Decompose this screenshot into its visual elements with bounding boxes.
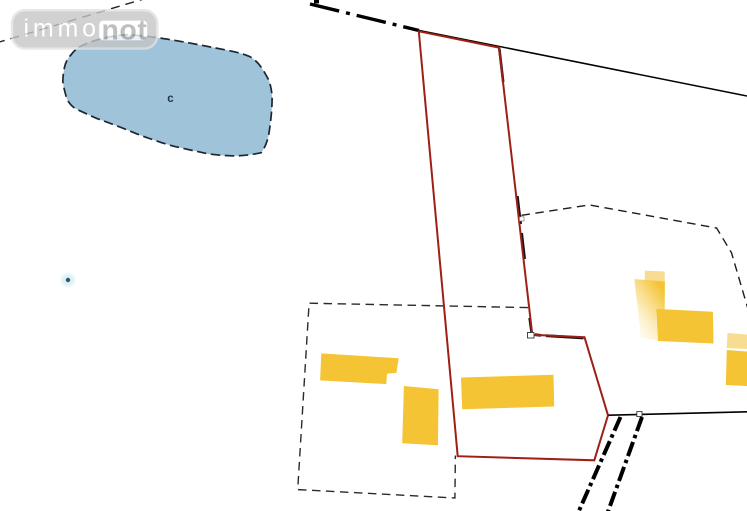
svg-text:not: not (102, 15, 148, 47)
svg-text:immo: immo (24, 15, 100, 43)
svg-text:c: c (167, 93, 174, 105)
